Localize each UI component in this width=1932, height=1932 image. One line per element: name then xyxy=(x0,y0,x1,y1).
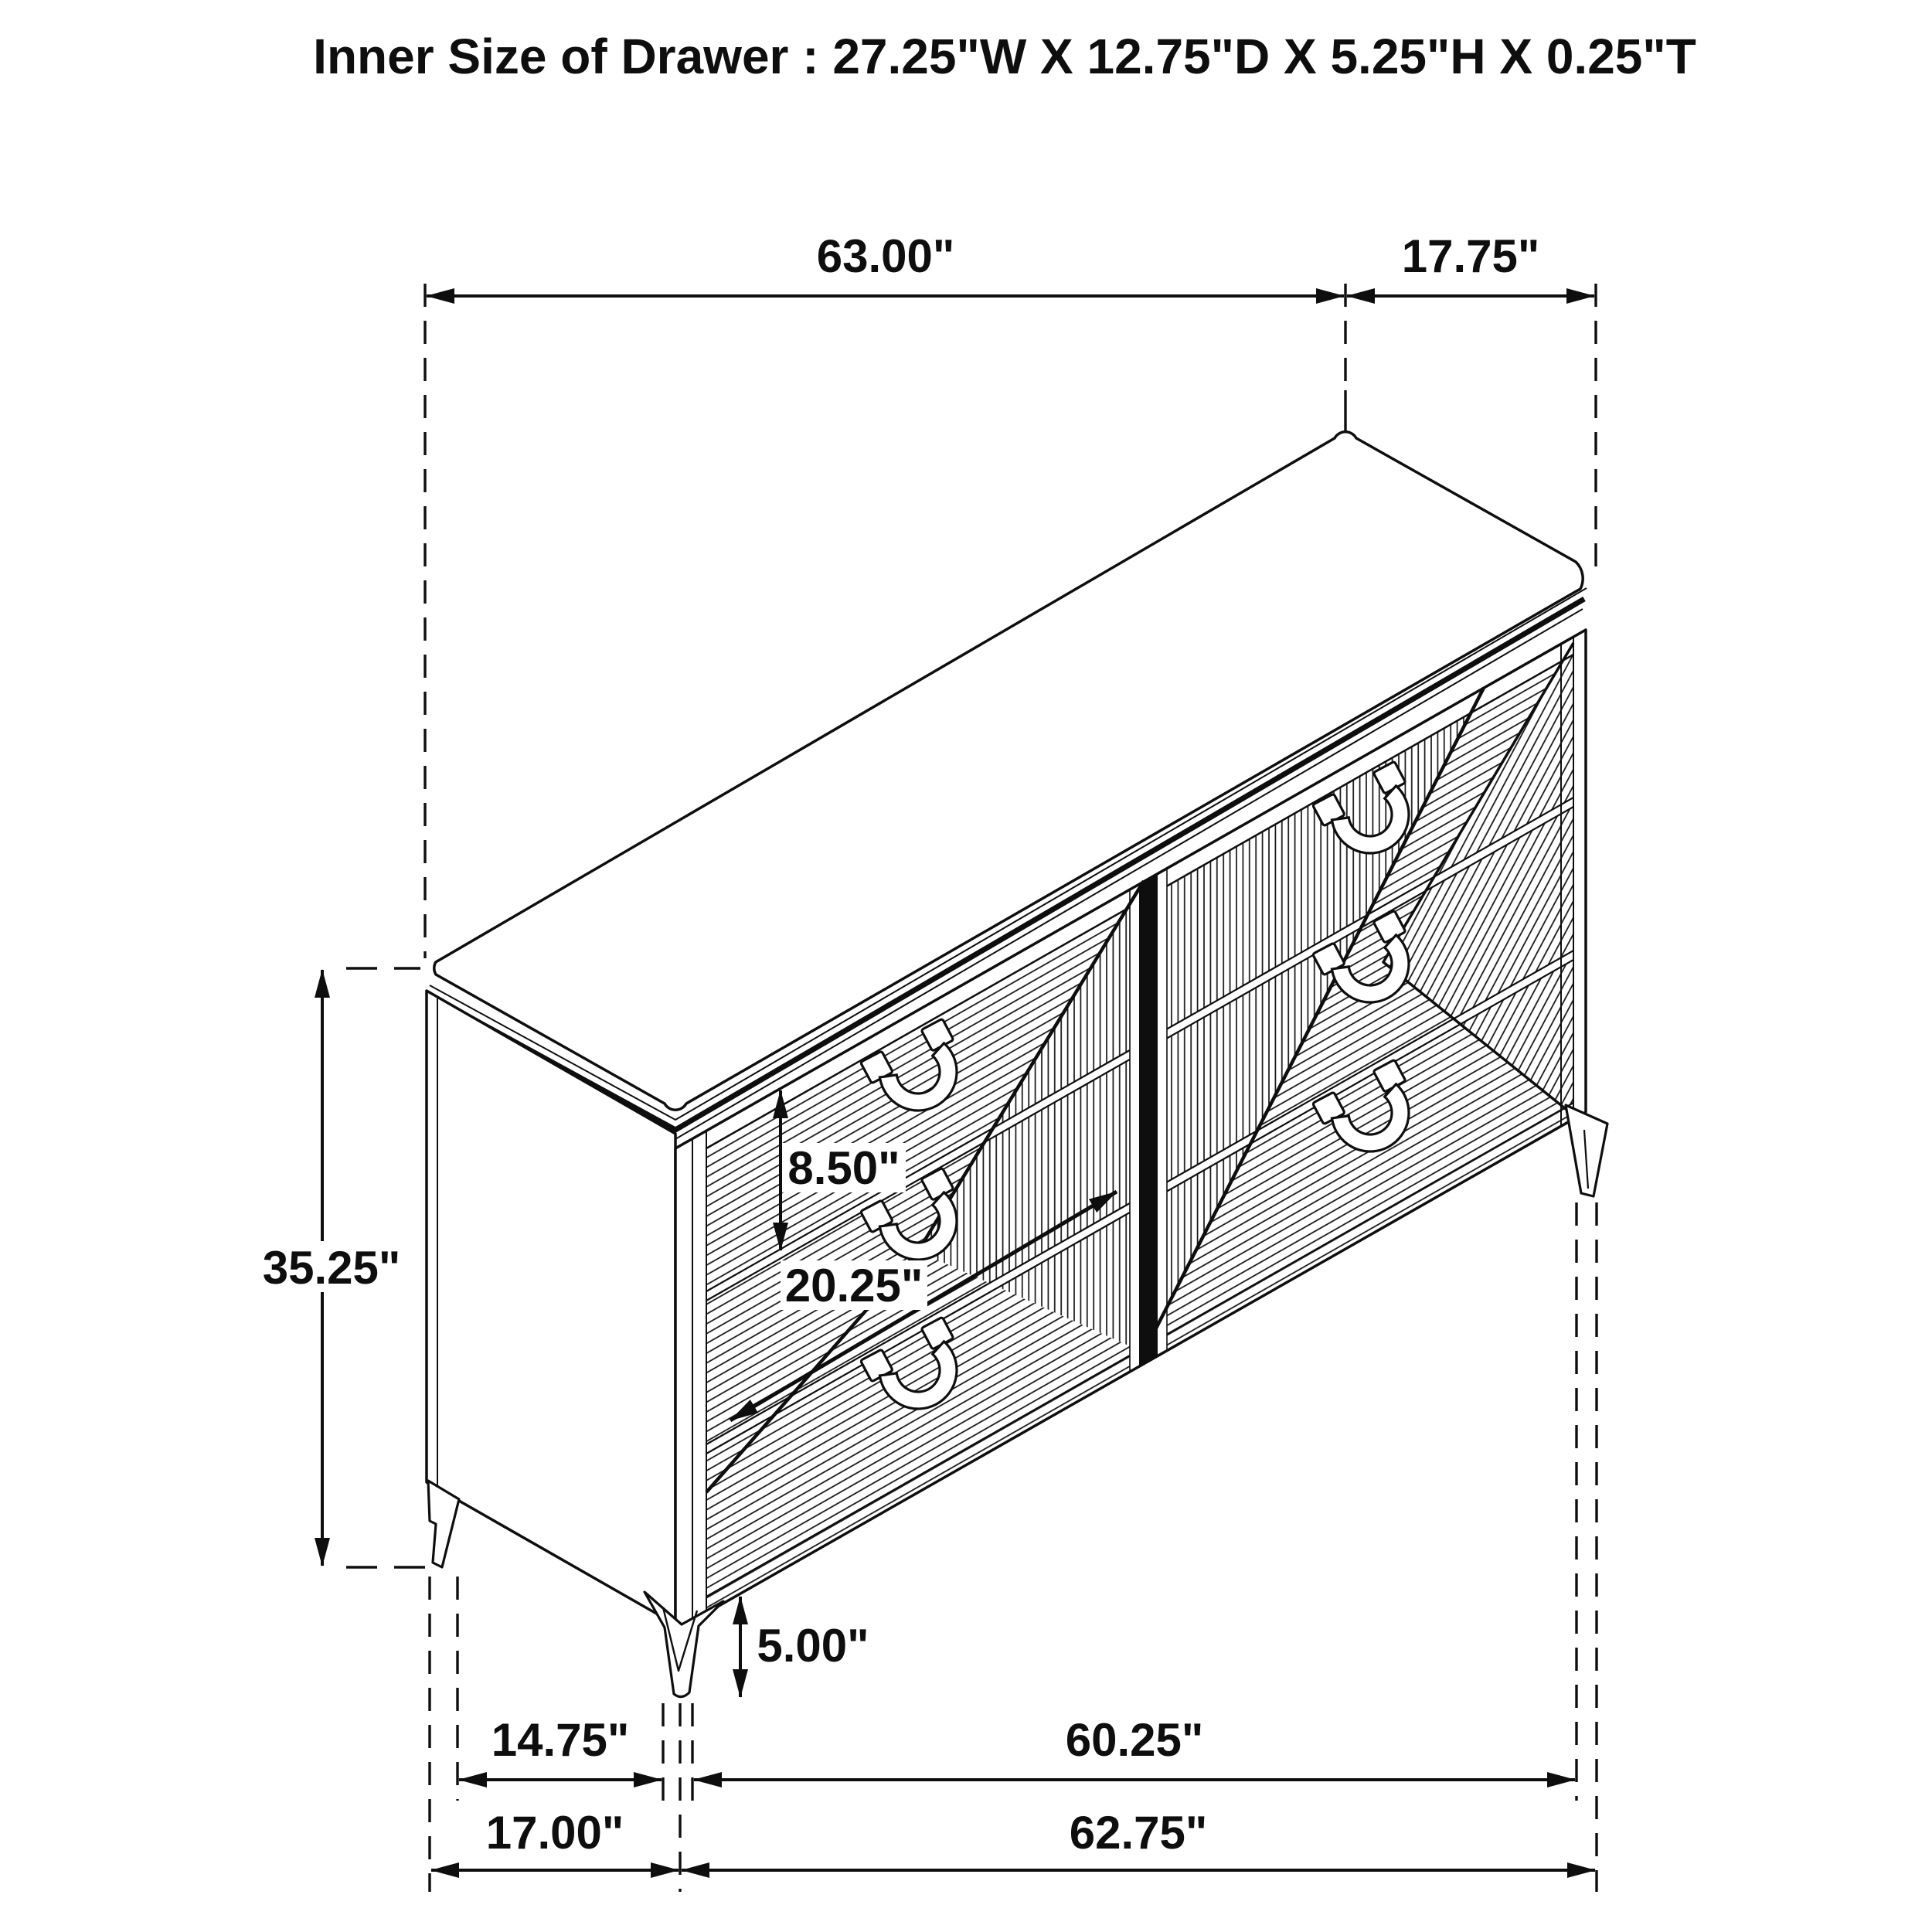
dim-top-depth: 17.75" xyxy=(1402,230,1540,282)
front-right-leg xyxy=(1566,1105,1607,1196)
dresser-dimension-diagram: Inner Size of Drawer : 27.25"W X 12.75"D… xyxy=(0,0,1932,1932)
dim-base-left: 17.00" xyxy=(486,1807,624,1859)
dim-height: 35.25" xyxy=(263,1242,401,1294)
diagram-title: Inner Size of Drawer : 27.25"W X 12.75"D… xyxy=(313,29,1696,84)
line-drawing-canvas: Inner Size of Drawer : 27.25"W X 12.75"D… xyxy=(0,0,1932,1932)
dim-base-width: 62.75" xyxy=(1070,1807,1208,1859)
dim-leg-span: 60.25" xyxy=(1066,1714,1204,1766)
dim-leg-inset: 14.75" xyxy=(492,1714,630,1766)
dim-drawer-width: 20.25" xyxy=(785,1260,923,1311)
dim-top-width: 63.00" xyxy=(817,230,955,282)
dim-drawer-height: 8.50" xyxy=(787,1142,900,1194)
dim-leg-height: 5.00" xyxy=(757,1620,869,1672)
